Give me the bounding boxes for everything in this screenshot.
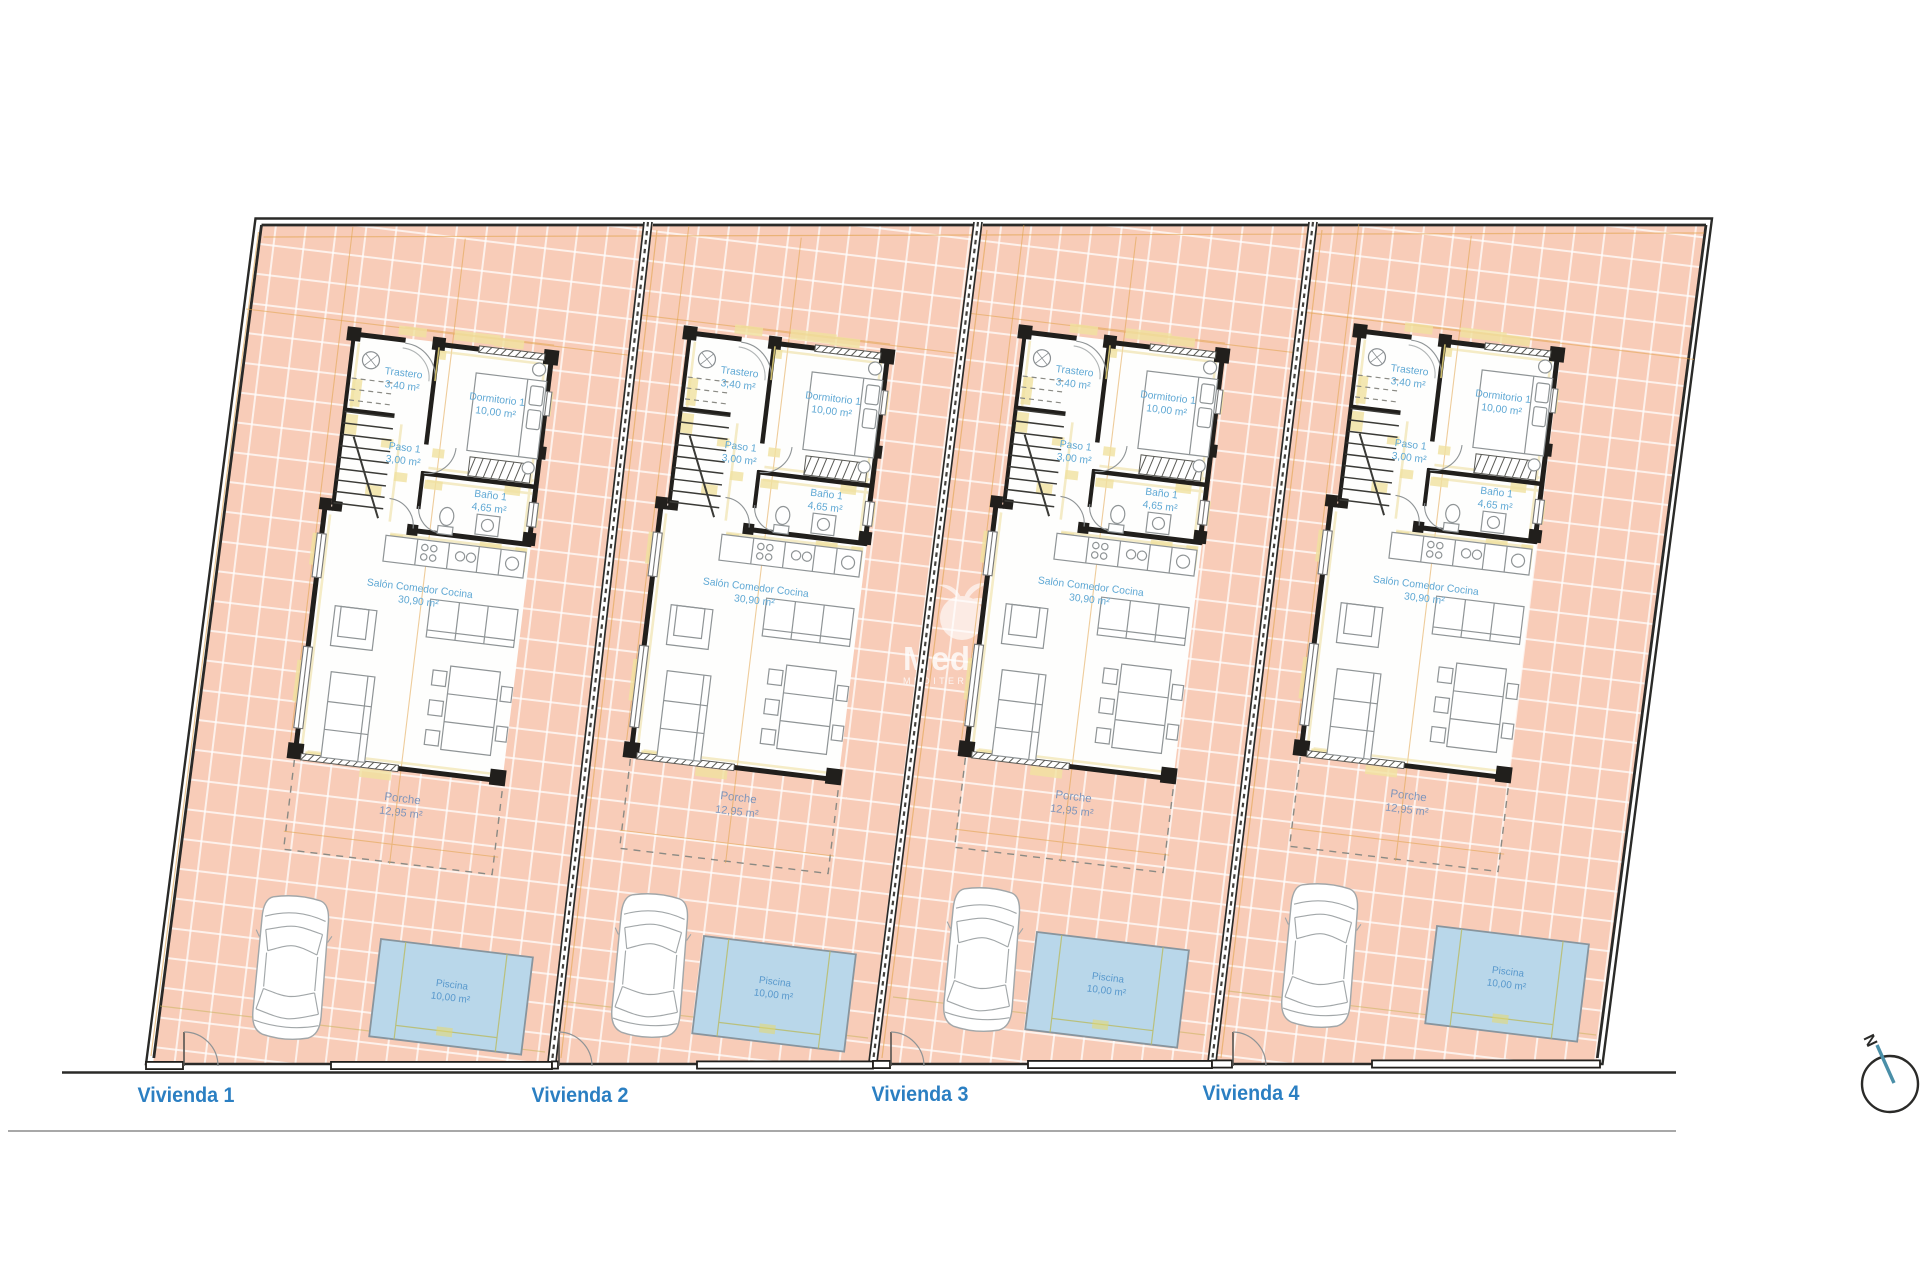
svg-text:Vivienda 4: Vivienda 4: [1203, 1082, 1300, 1105]
svg-text:Vivienda 3: Vivienda 3: [872, 1083, 969, 1106]
svg-text:Vivienda 1: Vivienda 1: [138, 1084, 235, 1107]
svg-text:Vivienda 2: Vivienda 2: [532, 1084, 629, 1107]
